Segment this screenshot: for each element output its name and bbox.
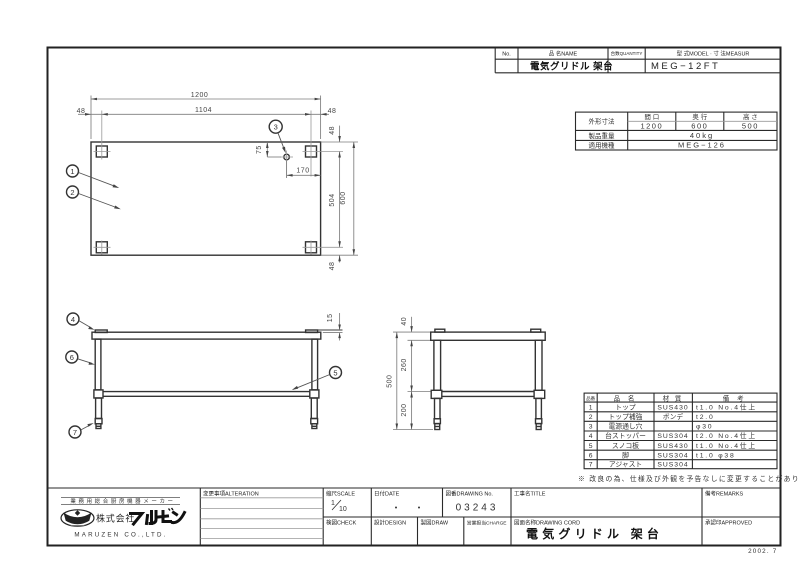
svg-text:型 式MODEL · 寸 法MEASUR: 型 式MODEL · 寸 法MEASUR [677, 50, 750, 58]
svg-text:外形寸法: 外形寸法 [589, 117, 616, 126]
svg-text:7: 7 [589, 461, 593, 468]
svg-text:500: 500 [742, 121, 759, 130]
svg-text:4: 4 [71, 315, 75, 324]
svg-text:1200: 1200 [640, 121, 663, 130]
svg-text:600: 600 [340, 191, 347, 204]
svg-text:600: 600 [691, 121, 708, 130]
svg-text:170: 170 [296, 168, 309, 175]
svg-text:48: 48 [328, 108, 337, 115]
svg-text:電気グリドル 架台: 電気グリドル 架台 [526, 526, 663, 541]
svg-text:5: 5 [589, 443, 593, 450]
svg-text:ボンデ: ボンデ [663, 412, 684, 421]
svg-text:1200: 1200 [191, 92, 209, 99]
svg-text:MEG−126: MEG−126 [678, 141, 726, 150]
svg-text:10: 10 [339, 506, 347, 513]
svg-text:No.: No. [502, 52, 511, 58]
svg-text:品番: 品番 [586, 395, 595, 402]
svg-text:間 口: 間 口 [644, 113, 659, 121]
svg-text:3: 3 [589, 424, 593, 431]
svg-text:200: 200 [401, 403, 408, 416]
svg-text:3: 3 [274, 123, 278, 132]
svg-text:SUS304: SUS304 [657, 452, 688, 459]
svg-text:SUS430: SUS430 [657, 405, 688, 412]
svg-text:MEG−12FT: MEG−12FT [651, 61, 720, 72]
svg-text:電気グリドル 架台: 電気グリドル 架台 [530, 61, 613, 73]
svg-text:図番DRAWING No.: 図番DRAWING No. [446, 491, 494, 498]
svg-text:48: 48 [329, 126, 336, 135]
svg-text:適用機種: 適用機種 [589, 141, 616, 150]
svg-text:φ30: φ30 [696, 424, 713, 431]
svg-text:高 さ: 高 さ [743, 112, 758, 121]
svg-text:t2.0 No.4仕上: t2.0 No.4仕上 [696, 431, 757, 440]
svg-text:アジャスト: アジャスト [609, 460, 642, 468]
svg-text:t2.0: t2.0 [696, 414, 715, 421]
svg-text:脚: 脚 [622, 450, 629, 459]
svg-text:504: 504 [329, 193, 336, 206]
svg-text:7: 7 [73, 428, 77, 437]
svg-text:5: 5 [333, 368, 337, 377]
svg-text:6: 6 [589, 452, 593, 459]
svg-text:縮尺SCALE: 縮尺SCALE [326, 490, 355, 498]
svg-text:※ 改良の為、仕様及び外観を予告なしに変更することがあります: ※ 改良の為、仕様及び外観を予告なしに変更することがあります。 [578, 474, 800, 483]
svg-text:SUS304: SUS304 [657, 461, 688, 468]
svg-text:40kg: 40kg [690, 131, 714, 140]
svg-text:4: 4 [589, 433, 593, 440]
svg-text:40: 40 [401, 317, 408, 326]
svg-text:500: 500 [386, 375, 393, 388]
svg-text:SUS430: SUS430 [657, 443, 688, 450]
svg-text:1104: 1104 [195, 107, 212, 114]
svg-text:業務用総合厨房機器メーカー: 業務用総合厨房機器メーカー [70, 497, 175, 505]
svg-text:1: 1 [70, 167, 74, 176]
svg-text:台数QUANTITY: 台数QUANTITY [611, 50, 643, 57]
svg-text:1: 1 [589, 405, 593, 412]
svg-text:1: 1 [331, 500, 335, 507]
svg-text:03243: 03243 [456, 503, 499, 514]
svg-text:備考REMARKS: 備考REMARKS [705, 490, 744, 498]
svg-text:MARUZEN CO.,LTD.: MARUZEN CO.,LTD. [74, 532, 167, 539]
svg-text:承認印APPROVED: 承認印APPROVED [705, 519, 752, 527]
svg-text:48: 48 [329, 262, 336, 271]
svg-text:2: 2 [589, 414, 593, 421]
svg-text:日付DATE: 日付DATE [374, 490, 400, 498]
svg-text:トップ: トップ [615, 404, 636, 412]
svg-text:スノコ板: スノコ板 [612, 441, 639, 450]
svg-text:品 名NAME: 品 名NAME [549, 50, 578, 58]
svg-text:材 質: 材 質 [663, 394, 684, 403]
svg-text:トップ補強: トップ補強 [609, 412, 643, 421]
svg-text:2002. 7: 2002. 7 [748, 548, 777, 555]
svg-text:t1.0 φ38: t1.0 φ38 [696, 452, 736, 459]
svg-text:2: 2 [70, 188, 74, 197]
svg-text:備 考: 備 考 [723, 394, 747, 403]
svg-text:製品重量: 製品重量 [589, 131, 616, 140]
svg-text:図面名称DRAWING CORD: 図面名称DRAWING CORD [514, 519, 580, 527]
svg-text:品 名: 品 名 [614, 394, 638, 403]
svg-text:260: 260 [401, 358, 408, 371]
svg-text:奥 行: 奥 行 [692, 112, 707, 121]
svg-text:電源通し穴: 電源通し穴 [609, 422, 643, 431]
svg-text:製図DRAW: 製図DRAW [421, 519, 449, 527]
svg-text:営業担当CHARGE: 営業担当CHARGE [467, 520, 507, 527]
svg-text:検図CHECK: 検図CHECK [326, 519, 357, 527]
svg-text:SUS304: SUS304 [657, 433, 688, 440]
svg-text:48: 48 [77, 108, 86, 115]
svg-text:台ストッパー: 台ストッパー [605, 431, 646, 440]
svg-text:6: 6 [70, 353, 74, 362]
svg-text:15: 15 [327, 313, 334, 322]
svg-text:変更事項ALTERATION: 変更事項ALTERATION [203, 490, 259, 498]
svg-text:t1.0 No.4仕上: t1.0 No.4仕上 [696, 441, 757, 450]
svg-text:75: 75 [256, 145, 263, 154]
svg-text:t1.0 No.4仕上: t1.0 No.4仕上 [696, 403, 757, 412]
svg-text:工事名TITLE: 工事名TITLE [514, 490, 546, 498]
svg-text:設計DESIGN: 設計DESIGN [374, 519, 406, 527]
